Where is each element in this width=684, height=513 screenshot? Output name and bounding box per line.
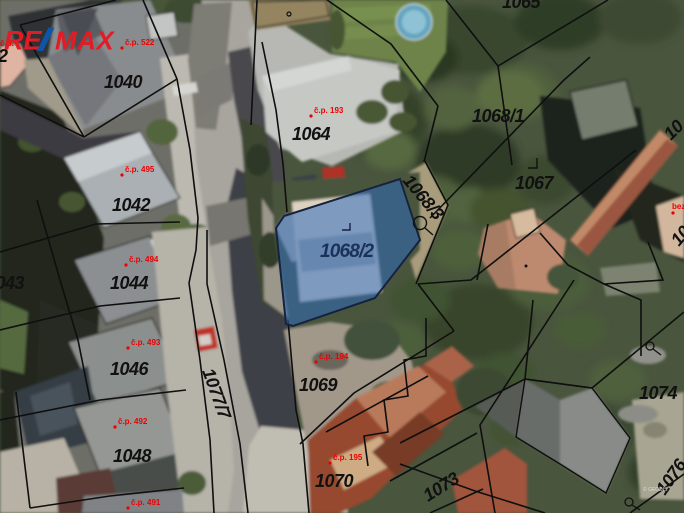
svg-text:RE: RE (4, 26, 42, 56)
svg-text:1067: 1067 (515, 173, 555, 193)
svg-text:č.p. 495: č.p. 495 (125, 165, 155, 174)
svg-text:1070: 1070 (315, 471, 354, 491)
svg-text:1068/1: 1068/1 (472, 106, 525, 126)
svg-text:1040: 1040 (104, 72, 143, 92)
svg-text:č.p. 193: č.p. 193 (314, 106, 344, 115)
svg-text:1043: 1043 (0, 273, 25, 293)
svg-text:1046: 1046 (110, 359, 150, 379)
svg-text:1048: 1048 (113, 446, 152, 466)
svg-text:1068/2: 1068/2 (320, 241, 375, 262)
svg-text:č.p. 491: č.p. 491 (131, 498, 161, 507)
svg-text:č.p. 494: č.p. 494 (129, 255, 159, 264)
svg-text:MAX: MAX (55, 26, 115, 56)
svg-text:č.p. 493: č.p. 493 (131, 338, 161, 347)
svg-text:č.p. 522: č.p. 522 (125, 38, 155, 47)
svg-text:1064: 1064 (292, 124, 331, 144)
svg-text:č.p. 195: č.p. 195 (333, 453, 363, 462)
svg-text:1044: 1044 (110, 273, 149, 293)
svg-text:1065: 1065 (502, 0, 542, 12)
svg-text:1069: 1069 (299, 375, 338, 395)
svg-text:1042: 1042 (112, 195, 151, 215)
svg-text:č.p. 492: č.p. 492 (118, 417, 148, 426)
svg-text:č.p. 194: č.p. 194 (319, 352, 349, 361)
svg-text:© GEODIS: © GEODIS (643, 486, 668, 493)
svg-text:1074: 1074 (639, 383, 678, 403)
svg-text:bez: bez (672, 202, 684, 211)
